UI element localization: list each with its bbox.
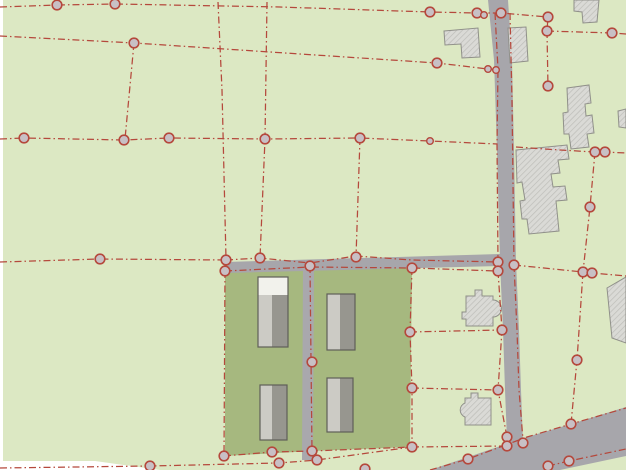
vertex-marker[interactable] — [110, 0, 120, 9]
vertex-marker[interactable] — [543, 81, 553, 91]
vertex-marker[interactable] — [219, 451, 229, 461]
vertex-marker[interactable] — [255, 253, 265, 263]
vertex-marker[interactable] — [164, 133, 174, 143]
vertex-marker[interactable] — [425, 7, 435, 17]
vertex-marker[interactable] — [407, 442, 417, 452]
vertex-marker[interactable] — [220, 266, 230, 276]
building-block-dark — [340, 294, 355, 350]
vertex-marker[interactable] — [145, 461, 155, 470]
vertex-marker[interactable] — [407, 383, 417, 393]
vertex-marker[interactable] — [564, 456, 574, 466]
vertex-marker[interactable] — [267, 447, 277, 457]
vertex-marker[interactable] — [502, 441, 512, 451]
vertex-marker[interactable] — [578, 267, 588, 277]
vertex-marker[interactable] — [129, 38, 139, 48]
vertex-marker[interactable] — [312, 455, 322, 465]
vertex-marker[interactable] — [274, 458, 284, 468]
vertex-marker[interactable] — [407, 263, 417, 273]
vertex-marker[interactable] — [585, 202, 595, 212]
vertex-marker[interactable] — [587, 268, 597, 278]
vertex-marker[interactable] — [19, 133, 29, 143]
vertex-marker[interactable] — [360, 464, 370, 470]
building-block-dark — [272, 385, 287, 440]
vertex-marker[interactable] — [572, 355, 582, 365]
vertex-marker[interactable] — [432, 58, 442, 68]
building-hatched — [618, 109, 626, 128]
vertex-marker[interactable] — [542, 26, 552, 36]
building-block-light — [327, 378, 340, 432]
vertex-marker[interactable] — [493, 385, 503, 395]
vertex-marker[interactable] — [405, 327, 415, 337]
vertex-marker[interactable] — [543, 461, 553, 470]
vertex-marker-small[interactable] — [493, 67, 500, 74]
vertex-marker[interactable] — [607, 28, 617, 38]
vertex-marker[interactable] — [493, 266, 503, 276]
vertex-marker[interactable] — [305, 261, 315, 271]
vertex-marker[interactable] — [566, 419, 576, 429]
vertex-marker[interactable] — [590, 147, 600, 157]
vertex-marker[interactable] — [260, 134, 270, 144]
vertex-marker-small[interactable] — [485, 66, 492, 73]
vertex-marker-small[interactable] — [481, 12, 488, 19]
building-block-dark — [340, 378, 353, 432]
building-block-light — [260, 385, 272, 440]
vertex-marker[interactable] — [496, 8, 506, 18]
building-hatched — [460, 393, 491, 425]
vertex-marker[interactable] — [119, 135, 129, 145]
map-canvas[interactable] — [0, 0, 626, 470]
vertex-marker[interactable] — [307, 446, 317, 456]
building-block-roof — [258, 277, 288, 295]
vertex-marker[interactable] — [355, 133, 365, 143]
building-block-light — [327, 294, 340, 350]
vertex-marker[interactable] — [95, 254, 105, 264]
vertex-marker-small[interactable] — [427, 138, 434, 145]
vertex-marker[interactable] — [509, 260, 519, 270]
cadastral-map — [0, 0, 626, 470]
map-margin — [0, 0, 3, 470]
vertex-marker[interactable] — [463, 454, 473, 464]
vertex-marker[interactable] — [497, 325, 507, 335]
vertex-marker[interactable] — [543, 12, 553, 22]
parcel-selected[interactable] — [225, 268, 412, 456]
vertex-marker[interactable] — [351, 252, 361, 262]
vertex-marker[interactable] — [518, 438, 528, 448]
vertex-marker[interactable] — [502, 432, 512, 442]
vertex-marker[interactable] — [600, 147, 610, 157]
vertex-marker[interactable] — [493, 257, 503, 267]
vertex-marker[interactable] — [307, 357, 317, 367]
vertex-marker[interactable] — [52, 0, 62, 10]
vertex-marker[interactable] — [221, 255, 231, 265]
